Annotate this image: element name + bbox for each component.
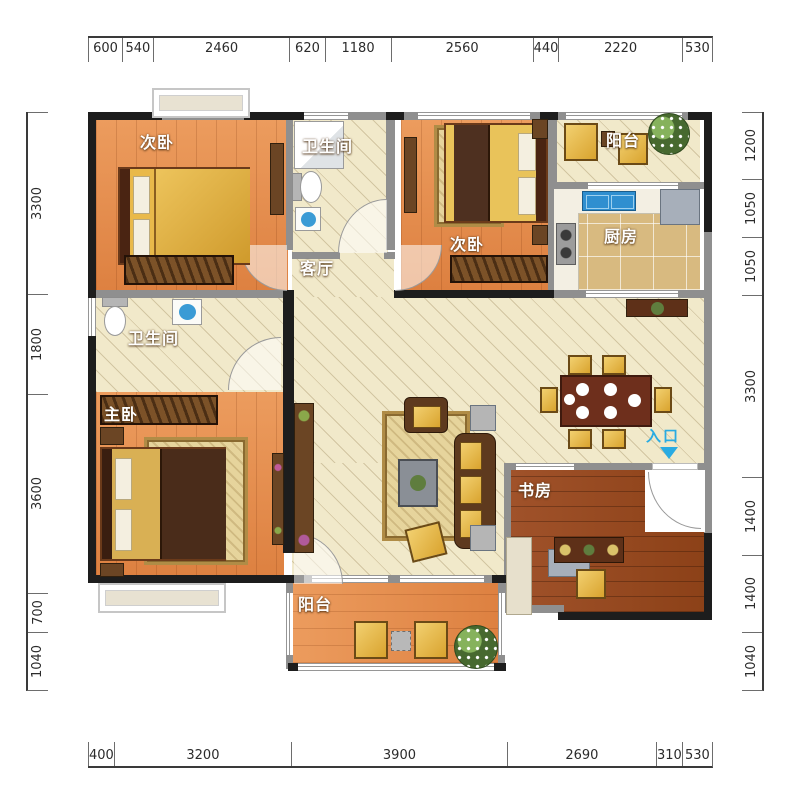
dim-label: 3200 [186,748,219,763]
dim-label: 3300 [31,187,46,220]
dresser-icon [270,143,284,215]
entrance-label: 入口 [646,425,680,446]
bed-blanket [154,169,250,263]
window-kitchen-balcony [588,182,678,189]
dim-label: 620 [295,41,320,56]
plant-icon [651,302,664,315]
wall-black-master-right [283,290,294,553]
dim-segment: 2690 [507,742,656,766]
dim-label: 540 [126,41,151,56]
dining-chair-icon [654,387,672,413]
dim-segment: 1180 [325,38,391,62]
dim-segment: 3300 [28,112,48,294]
dim-segment: 1050 [742,237,762,295]
pillow [133,219,150,257]
dim-segment: 530 [682,742,712,766]
table-plant [410,475,426,491]
bay-window-top [152,88,250,118]
wall-black-top1 [88,112,162,120]
dim-label: 310 [657,748,682,763]
room-label-bathroom-left: 卫生间 [128,325,179,349]
dim-label: 530 [685,41,710,56]
dim-label: 3900 [383,748,416,763]
dim-label: 2220 [604,41,637,56]
wall-bath-top-right [386,120,395,250]
dimension-scale-left: 3300180036007001040 [26,112,48,691]
window-bedroom2 [418,112,530,120]
armchair-icon [404,397,448,433]
wardrobe-icon [124,255,234,285]
window-bathroom-top [304,112,348,120]
dimension-scale-top: 6005402460620118025604402220530 [88,36,713,62]
toilet-icon [104,306,126,336]
entry-door-leaf [652,463,698,470]
sink-bowl [301,212,316,227]
bed-blanket [454,125,490,221]
room-label-balcony-bottom: 阳台 [298,591,332,615]
balcony-chair-icon [414,621,448,659]
window-study-top [516,463,574,470]
dim-segment: 1200 [742,112,762,179]
toilet-icon [300,171,322,203]
wall-black-top3 [386,112,404,120]
dim-label: 2690 [565,748,598,763]
dim-segment: 3900 [291,742,507,766]
dim-label: 400 [89,748,114,763]
nightstand-icon [532,225,548,245]
sideboard-icon [626,299,688,317]
dim-label: 440 [534,41,559,56]
stove-icon [556,223,576,265]
dim-segment: 1040 [28,632,48,690]
dim-segment: 440 [533,38,559,62]
pillow [518,177,536,215]
entrance-arrow-icon [660,447,678,459]
dim-label: 1050 [745,250,760,283]
plate [604,383,617,396]
bed-headboard [102,449,112,559]
sink-basin [586,195,609,209]
plant-icon [648,113,690,155]
sink-basin [611,195,634,209]
wall-black-study-bottom [558,612,712,620]
wall-black-balc-corner2 [494,663,506,671]
coffee-table-icon [398,459,438,507]
dim-label: 1040 [31,645,46,678]
bay-window-bottom [98,583,226,613]
pillow [115,458,132,500]
dining-table-icon [560,375,652,427]
bed-headboard [120,169,130,263]
plant-icon [454,625,498,669]
wall-entry-right [704,470,712,533]
dim-segment: 1800 [28,294,48,394]
dim-segment: 1400 [742,555,762,633]
pillow [115,509,132,551]
dim-label: 3300 [745,370,760,403]
dim-label: 600 [93,41,118,56]
lounge-cushion-icon [564,123,598,161]
dining-chair-icon [568,429,592,449]
bay-window-sill [159,95,243,111]
dim-segment: 620 [289,38,324,62]
floor-plan: 次卧 卫生间 客厅 次卧 阳台 厨房 卫生间 主卧 书房 阳台 入口 [88,85,712,697]
pillow [133,176,150,214]
dim-segment: 600 [88,38,122,62]
nightstand-icon [532,119,548,139]
tv-cabinet-icon [294,403,314,553]
dim-label: 1200 [745,129,760,162]
dresser-icon [404,137,417,213]
dim-label: 1180 [342,41,375,56]
plate [576,383,589,396]
side-table-icon [470,405,496,431]
double-bed-icon [118,167,250,265]
wall-black-left-upper [88,112,96,298]
plate [564,394,575,405]
sink-icon [172,299,202,325]
plate [604,406,617,419]
wall-black-bedroom2-bottom [394,290,554,298]
dim-segment: 1050 [742,179,762,237]
room-label-bathroom-top: 卫生间 [302,133,353,157]
window-balcony-right [498,593,505,655]
kitchen-sink-icon [582,191,636,211]
nightstand-icon [100,427,124,445]
sink-icon [295,207,321,231]
dining-chair-icon [602,429,626,449]
wall-black-top2 [244,112,308,120]
bed-blanket [160,449,226,559]
dim-label: 530 [685,748,710,763]
window-living-balcony-b [400,575,484,583]
wall-entry-a [636,463,652,470]
window-kitchen-pass [586,290,678,298]
dim-segment: 400 [88,742,114,766]
room-label-kitchen: 厨房 [604,223,638,247]
double-bed-icon [100,447,226,561]
room-label-living-room: 客厅 [300,255,334,279]
room-label-bedroom-top-left: 次卧 [140,129,174,153]
sink-bowl [179,304,196,320]
dim-label: 1050 [745,192,760,225]
dim-segment: 3600 [28,394,48,593]
dim-label: 1800 [31,328,46,361]
dim-segment: 540 [122,38,153,62]
dim-segment: 3300 [742,295,762,476]
dim-segment: 700 [28,593,48,632]
wardrobe-icon [450,255,548,283]
armchair-cushion [413,406,441,428]
desk-chair-icon [576,569,606,599]
dresser-icon [272,453,284,545]
bay-window-sill [105,590,219,606]
dimension-scale-right: 1200105010503300140014001040 [742,112,764,691]
balcony-table-icon [391,631,411,651]
dim-label: 2460 [205,41,238,56]
sofa-cushion [460,476,482,504]
room-label-balcony-top: 阳台 [606,127,640,151]
sofa-cushion [460,442,482,470]
bookcase-icon [506,537,532,615]
wall-black-right-upper [704,112,712,232]
dim-segment: 1040 [742,632,762,690]
room-label-master-bedroom: 主卧 [104,401,138,425]
dining-chair-icon [540,387,558,413]
dim-segment: 3200 [114,742,291,766]
dim-label: 1400 [745,577,760,610]
wall-black-study-right [704,533,712,619]
plate [576,406,589,419]
fridge-icon [660,189,700,225]
plate [628,394,641,407]
dim-label: 2560 [446,41,479,56]
balcony-chair-icon [354,621,388,659]
dim-label: 700 [31,600,46,625]
dim-label: 1400 [745,500,760,533]
dim-segment: 1400 [742,477,762,555]
wall-black-left-lower [88,336,96,583]
nightstand-icon [100,563,124,577]
desk-icon [554,537,624,563]
bed-headboard [536,125,546,221]
dining-chair-icon [568,355,592,375]
room-label-bedroom-top-right: 次卧 [450,231,484,255]
wall-bath-top-bottom-b [384,252,395,259]
side-table-icon [470,525,496,551]
dining-chair-icon [602,355,626,375]
dim-label: 3600 [31,477,46,510]
dim-segment: 530 [682,38,712,62]
dim-label: 1040 [745,645,760,678]
window-balcony-left [286,593,293,655]
dim-segment: 2560 [391,38,533,62]
room-label-study: 书房 [518,477,552,501]
floor-plan-canvas: 6005402460620118025604402220530 40032003… [0,0,800,800]
window-bathroom-left [88,298,96,336]
dim-segment: 2460 [153,38,290,62]
dim-segment: 2220 [558,38,681,62]
dimension-scale-bottom: 400320039002690310530 [88,742,713,768]
dim-segment: 310 [656,742,682,766]
